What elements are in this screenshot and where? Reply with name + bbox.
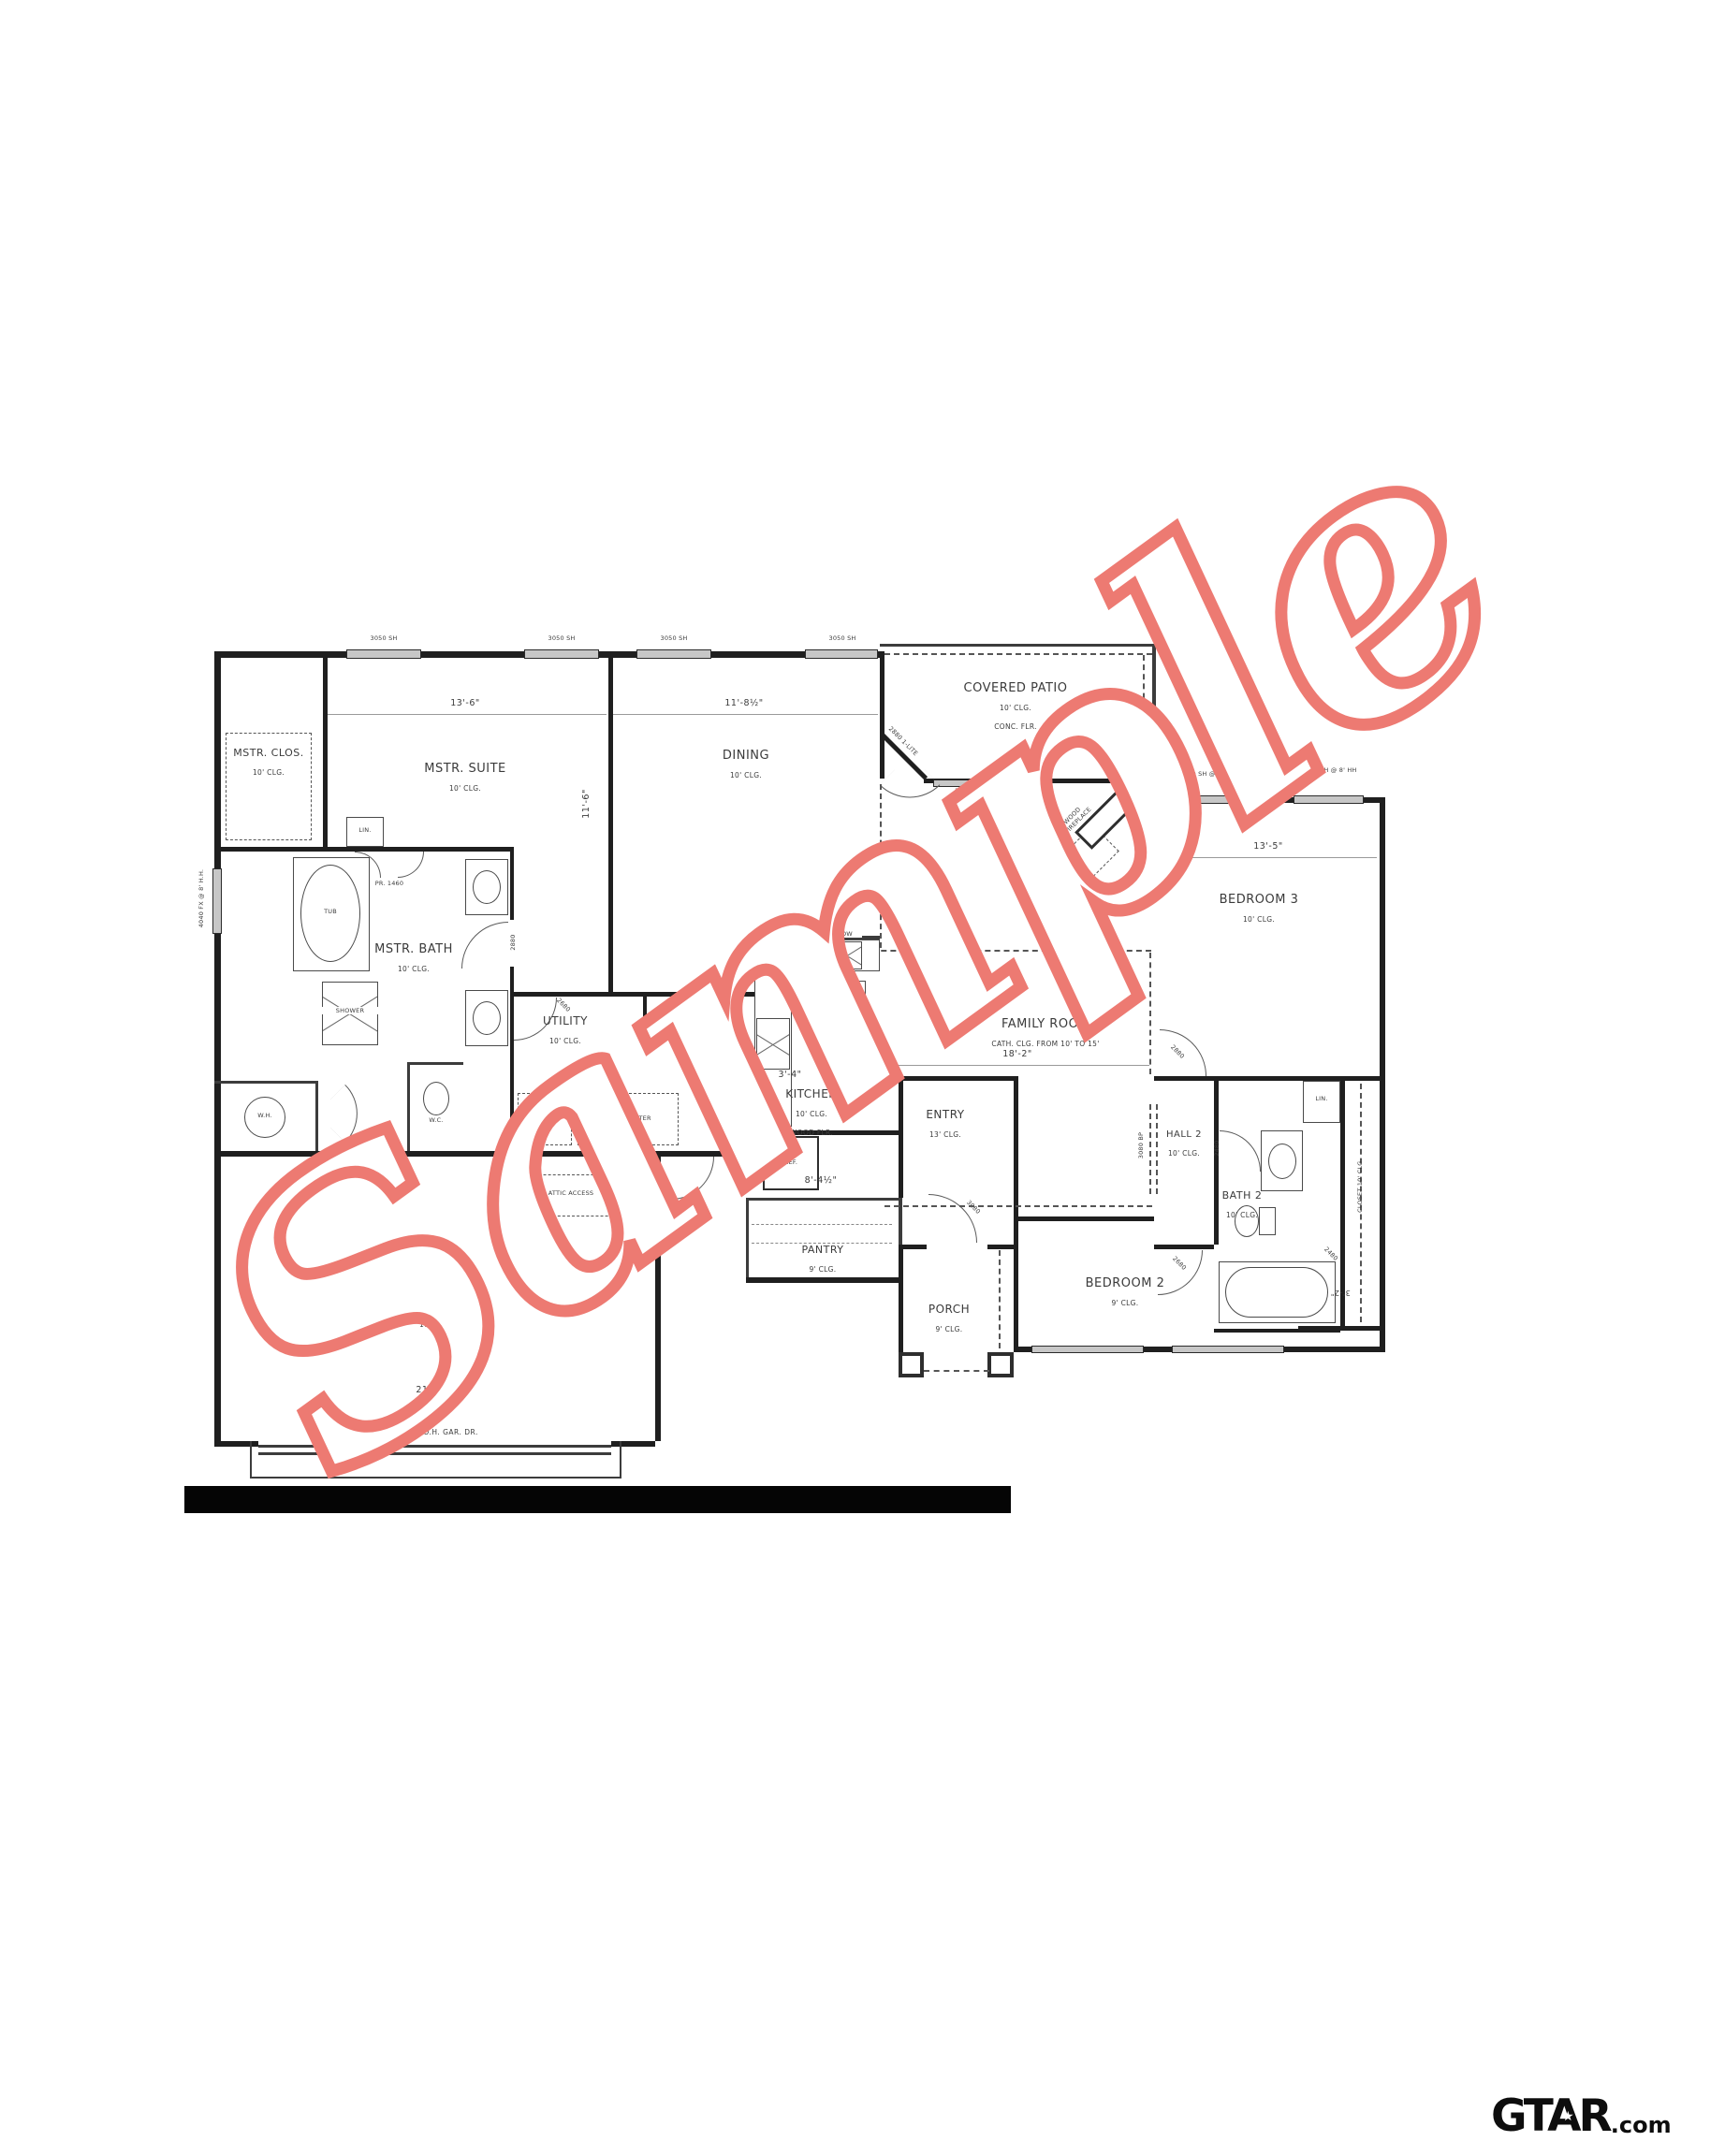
room-label-bath2: BATH 2 10' CLG. <box>1205 1185 1279 1222</box>
room-name: MSTR. BATH <box>374 942 453 956</box>
room-label-covered-patio: COVERED PATIO 10' CLG. CONC. FLR. <box>931 677 1100 734</box>
wall-bath-right <box>510 847 514 920</box>
room-name: MSTR. CLOS. <box>233 747 304 759</box>
dimline-dining <box>613 714 878 715</box>
patio-right-dashed <box>1143 655 1145 794</box>
room-label-garage: 2 CAR GARAGE 10' CLG. <box>351 1294 519 1332</box>
sink-bath2 <box>1268 1144 1296 1179</box>
wall-bed2-left <box>1014 1076 1018 1352</box>
window-label: 3050 SH <box>810 634 875 642</box>
room-ceiling: 9' CLG. <box>936 1325 963 1333</box>
room-label-utility: UTILITY 10' CLG. <box>514 1011 617 1048</box>
dim-garage-width: 21'-1½" <box>398 1385 473 1396</box>
window-bed2-1 <box>1031 1346 1144 1353</box>
wall-right-outer <box>1380 797 1385 1331</box>
gtar-logo-suffix: .com <box>1611 2114 1672 2138</box>
window-dining-2 <box>805 649 878 659</box>
room-ceiling: 9' CLG. <box>1112 1299 1139 1307</box>
door-label-suite: 2880 <box>509 928 517 956</box>
room-label-hall2: HALL 2 10' CLG. <box>1150 1123 1218 1160</box>
room-name: PORCH <box>928 1303 970 1316</box>
room-floor: CONC. FLR. <box>994 722 1037 731</box>
dimline-suite <box>328 714 607 715</box>
dimline-bed3 <box>1160 857 1377 858</box>
tub-label: TUB <box>312 908 349 915</box>
room-label-mstr-bath: MSTR. BATH 10' CLG. <box>339 939 489 976</box>
room-ceiling: 10' CLG. <box>1000 704 1031 712</box>
wall-bath2-bottom <box>1214 1329 1340 1333</box>
porch-slab-dashed <box>924 1370 989 1372</box>
room-ceiling: 10' CLG. <box>449 784 481 793</box>
patio-top-dashed <box>884 653 1152 655</box>
dryer-label: DRY/COUNTER <box>577 1114 679 1122</box>
garage-door-line1 <box>258 1445 611 1448</box>
dim-kitchen-b: 5'-4" <box>826 1070 873 1081</box>
dishwasher <box>832 941 862 969</box>
room-name: ENTRY <box>926 1108 964 1121</box>
wall-garage-bottom-right <box>611 1441 655 1447</box>
gtar-logo-text: GTAR <box>1491 2090 1610 2142</box>
room-name: 2 CAR GARAGE <box>387 1298 484 1312</box>
wall-pantry-bottom <box>746 1277 902 1283</box>
room-ceiling: CATH. CLG. FROM 10' TO 15' <box>991 1040 1099 1048</box>
apron-bottom <box>250 1477 621 1479</box>
shower-label: SHOWER <box>322 1007 378 1014</box>
wall-wc-left <box>407 1062 410 1151</box>
garage-door-line2 <box>258 1452 611 1455</box>
door-arc-bath2 <box>1220 1130 1261 1172</box>
texas-star-icon: ★ <box>1562 2110 1572 2123</box>
door-arc-pair-right <box>398 852 424 878</box>
room-ceiling: 10' CLG. <box>1243 915 1275 924</box>
room-label-family-room: FAMILY ROOM CATH. CLG. FROM 10' TO 15' <box>952 1013 1139 1051</box>
water-heater-label: W.H. <box>244 1112 285 1119</box>
room-floor: WOOD FLR. <box>790 1129 833 1137</box>
room-ceiling: 10' CLG. <box>419 1320 451 1329</box>
room-name: KITCHEN <box>785 1087 838 1100</box>
room-ceiling: 10' CLG. <box>730 771 762 779</box>
room-label-bedroom3: BEDROOM 3 10' CLG. <box>1184 889 1334 926</box>
room-name: DINING <box>723 749 769 763</box>
room-label-mud: MUD 10' CLG. <box>654 1011 729 1048</box>
room-name: UTILITY <box>543 1014 588 1027</box>
window-bed3-2 <box>1294 795 1364 804</box>
linen-bath2-label: LIN. <box>1303 1095 1340 1102</box>
pantry-shelf-1 <box>752 1224 892 1225</box>
window-label-bath: 4040 FX @ 8' H.H. <box>197 861 205 936</box>
gtar-logo-brand: GTAR ★ <box>1491 2094 1610 2138</box>
wall-pantry-left <box>746 1198 749 1277</box>
room-ceiling: 9' CLG. <box>810 1265 837 1274</box>
fridge-label: REF. <box>763 1158 819 1166</box>
washer-label: WASH <box>518 1114 572 1122</box>
room-name: MSTR. SUITE <box>424 762 506 776</box>
room-label-dining: DINING 10' CLG. <box>671 745 821 782</box>
dim-pantry-width: 8'-4½" <box>783 1175 858 1187</box>
window-label-patio: 2 + 3070 SH @ 8' HH <box>928 787 1050 794</box>
farm-sink <box>834 995 858 1027</box>
room-label-mstr-suite: MSTR. SUITE 10' CLG. <box>390 758 540 795</box>
room-ceiling: 10' CLG. <box>253 768 285 777</box>
kitchen-counter-north <box>763 940 880 971</box>
wall-entry-porch-b <box>987 1245 1014 1249</box>
room-name: BEDROOM 2 <box>1086 1276 1165 1290</box>
window-label-bed3-left: 3070 SH @ 8' HH <box>1165 770 1250 778</box>
garage-door-label: 16080 O.H. GAR. DR. <box>344 1428 531 1436</box>
wall-hall-bath-top <box>1154 1076 1385 1081</box>
room-name: BEDROOM 3 <box>1220 893 1299 907</box>
wall-suite-right <box>608 651 613 992</box>
wall-utility-mud <box>643 992 647 1046</box>
cath-ceiling-dash-2 <box>884 1205 1152 1207</box>
room-label-entry: ENTRY 13' CLG. <box>894 1104 997 1142</box>
window-label: 3050 SH <box>351 634 417 642</box>
apron-right <box>620 1441 621 1479</box>
wall-dining-right <box>880 651 884 779</box>
door-arc-wc <box>316 1085 374 1143</box>
water-closet-label: W.C. <box>412 1116 460 1124</box>
window-label-bed3-right: 3070 SH @ 8' HH <box>1287 766 1371 774</box>
family-dash-left <box>880 784 882 948</box>
sink-2 <box>473 1001 501 1035</box>
wall-bath-right-b <box>510 967 514 1151</box>
wall-clos-bath <box>214 847 510 852</box>
room-label-bedroom2: BEDROOM 2 9' CLG. <box>1045 1273 1205 1310</box>
apron-left <box>250 1441 252 1479</box>
porch-pier-left <box>899 1352 924 1377</box>
dim-suite-width: 13'-6" <box>428 698 503 709</box>
attic-access-label: ATTIC ACCESS <box>510 1189 632 1197</box>
room-label-porch: PORCH 9' CLG. <box>898 1299 1001 1336</box>
dimline-family <box>884 1065 1149 1066</box>
window-suite-2 <box>524 649 599 659</box>
room-ceiling: 10' CLG. <box>676 1037 708 1045</box>
window-patio-wall <box>933 779 1036 787</box>
family-dash-right <box>1149 953 1151 1074</box>
room-ceiling: 10' CLG. <box>796 1110 827 1118</box>
wall-garage-right <box>655 1151 661 1441</box>
room-name: PANTRY <box>801 1244 843 1256</box>
room-ceiling: 10' CLG. <box>1168 1149 1200 1158</box>
porch-pier-right <box>987 1352 1014 1377</box>
wall-wc-top <box>407 1062 463 1065</box>
wall-wh-top <box>214 1081 315 1084</box>
farm-sink-label: FARM SINK <box>783 977 826 984</box>
window-label: 3050 SH <box>641 634 707 642</box>
floor-plan-page: 3050 SH 3050 SH 3050 SH 3050 SH 3070 SH … <box>0 0 1725 2156</box>
wall-entry-porch-a <box>899 1245 927 1249</box>
room-label-mstr-clos: MSTR. CLOS. 10' CLG. <box>203 742 334 779</box>
gtar-logo: GTAR ★ .com <box>1491 2094 1672 2138</box>
wall-family-bottom <box>1014 1216 1154 1221</box>
room-ceiling: 10' CLG. <box>1226 1211 1258 1219</box>
room-name: BATH 2 <box>1222 1189 1263 1202</box>
wall-patio-top <box>880 644 1158 647</box>
drawing-footer-bar <box>184 1486 1011 1513</box>
dim-kitchen-a: 3'-4" <box>767 1070 813 1081</box>
dim-family-width: 18'-2" <box>980 1049 1055 1060</box>
wall-patio-right <box>1152 644 1156 801</box>
room-label-closet2: CLOSET 10' CLG. <box>1356 1148 1364 1223</box>
door-arc-patio <box>879 754 940 815</box>
hall-bypass-label: 3080 BP <box>1137 1125 1145 1166</box>
sink-1 <box>473 870 501 904</box>
dishwasher-label: DW <box>832 930 862 938</box>
wall-pantry-top <box>746 1198 899 1201</box>
room-ceiling: 13' CLG. <box>929 1130 961 1139</box>
room-name: MUD <box>678 1014 706 1027</box>
window-bath-left <box>212 868 222 934</box>
dim-suite-depth: 11'-6" <box>581 776 592 832</box>
room-label-pantry: PANTRY 9' CLG. <box>767 1239 879 1276</box>
dim-closet-depth: 3'-2" <box>1312 1288 1368 1297</box>
window-bed2-2 <box>1172 1346 1284 1353</box>
dim-bed3-width: 13'-5" <box>1231 841 1306 852</box>
room-name: COVERED PATIO <box>964 681 1068 695</box>
room-label-kitchen: KITCHEN 10' CLG. WOOD FLR. <box>746 1084 877 1140</box>
room-name: HALL 2 <box>1166 1129 1202 1140</box>
pair-door-label: PR. 1460 <box>367 880 412 887</box>
window-label: 3050 SH <box>529 634 594 642</box>
dim-dining-width: 11'-8½" <box>707 698 782 709</box>
window-suite-1 <box>346 649 421 659</box>
floor-plan: 3050 SH 3050 SH 3050 SH 3050 SH 3070 SH … <box>184 644 1388 1513</box>
wall-hall-bottom <box>1154 1245 1214 1249</box>
room-ceiling: 10' CLG. <box>398 965 430 973</box>
water-closet <box>423 1082 449 1115</box>
linen-mstr-label: LIN. <box>346 826 384 834</box>
door-arc-garage <box>671 1157 714 1200</box>
room-ceiling: 10' CLG. <box>549 1037 581 1045</box>
range <box>756 1018 790 1070</box>
window-bed3-1 <box>1172 795 1242 804</box>
room-name: FAMILY ROOM <box>1001 1017 1089 1031</box>
window-dining-1 <box>636 649 711 659</box>
